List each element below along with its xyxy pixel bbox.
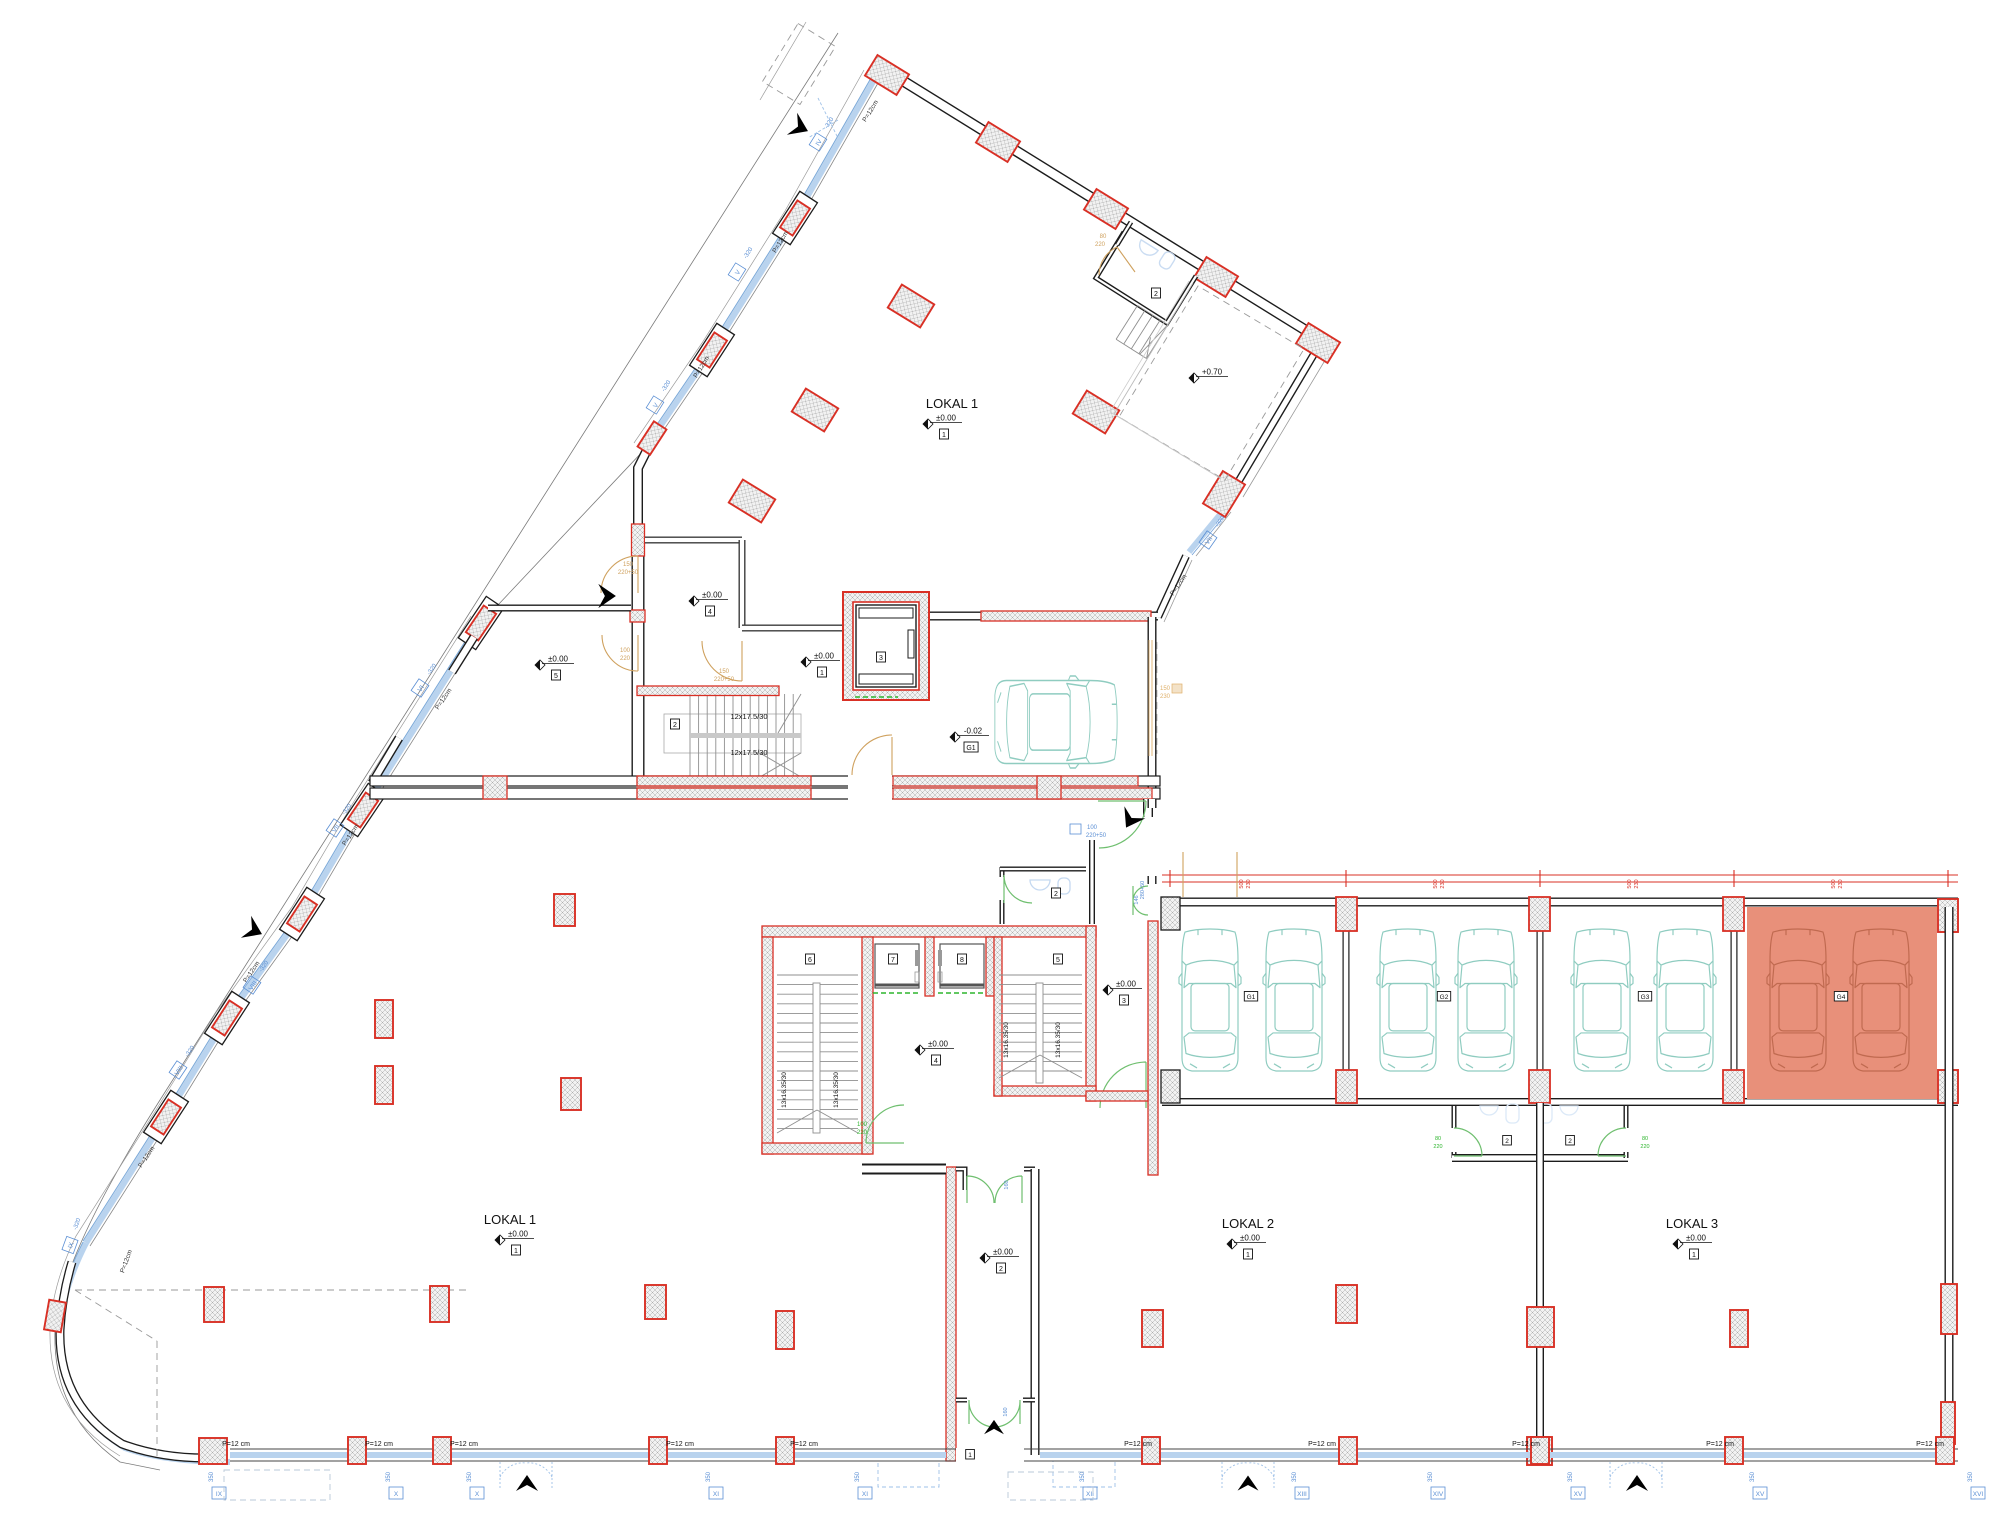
svg-text:13x16.35/30: 13x16.35/30 — [1055, 1022, 1062, 1058]
svg-text:P=12 cm: P=12 cm — [1916, 1441, 1944, 1448]
svg-text:150: 150 — [1160, 686, 1171, 692]
svg-text:LOKAL 2: LOKAL 2 — [1222, 1216, 1274, 1231]
svg-text:1: 1 — [968, 1452, 972, 1459]
svg-text:5: 5 — [1056, 957, 1060, 964]
svg-text:13x16.35/30: 13x16.35/30 — [833, 1072, 840, 1108]
svg-text:XI: XI — [862, 1491, 868, 1498]
svg-text:XI: XI — [713, 1491, 719, 1498]
svg-text:G3: G3 — [1641, 994, 1650, 1001]
svg-text:230: 230 — [1634, 879, 1640, 888]
svg-text:1: 1 — [1246, 1252, 1250, 1259]
svg-text:100: 100 — [620, 648, 631, 654]
svg-text:XV: XV — [1756, 1491, 1765, 1498]
svg-text:5: 5 — [554, 673, 558, 680]
svg-text:350: 350 — [855, 1471, 861, 1482]
svg-text:±0.00: ±0.00 — [702, 591, 723, 600]
svg-text:500: 500 — [1239, 879, 1245, 888]
svg-text:350: 350 — [1968, 1471, 1974, 1482]
svg-text:±0.00: ±0.00 — [814, 652, 835, 661]
svg-text:3: 3 — [879, 655, 883, 662]
svg-text:350: 350 — [1750, 1471, 1756, 1482]
svg-text:13x16.35/30: 13x16.35/30 — [1003, 1022, 1010, 1058]
svg-text:2: 2 — [1505, 1138, 1509, 1145]
svg-text:2: 2 — [673, 722, 677, 729]
svg-text:IX: IX — [216, 1491, 223, 1498]
svg-text:P=12 cm: P=12 cm — [222, 1441, 250, 1448]
svg-text:6: 6 — [808, 957, 812, 964]
svg-text:±0.00: ±0.00 — [936, 414, 957, 423]
svg-text:7: 7 — [891, 957, 895, 964]
svg-text:P=12 cm: P=12 cm — [1124, 1441, 1152, 1448]
svg-text:2: 2 — [1154, 291, 1158, 298]
svg-text:500: 500 — [1627, 879, 1633, 888]
svg-text:XIII: XIII — [1297, 1491, 1307, 1498]
svg-text:220: 220 — [620, 656, 631, 662]
svg-text:P=12 cm: P=12 cm — [1706, 1441, 1734, 1448]
svg-text:220+50: 220+50 — [714, 677, 735, 683]
svg-text:350: 350 — [706, 1471, 712, 1482]
svg-text:350: 350 — [1568, 1471, 1574, 1482]
svg-text:±0.00: ±0.00 — [508, 1230, 529, 1239]
svg-text:350: 350 — [209, 1471, 215, 1482]
svg-text:LOKAL 3: LOKAL 3 — [1666, 1216, 1718, 1231]
svg-text:12x17.5/30: 12x17.5/30 — [730, 748, 767, 757]
svg-text:XVI: XVI — [1973, 1491, 1984, 1498]
svg-text:13x16.35/30: 13x16.35/30 — [781, 1072, 788, 1108]
svg-text:1: 1 — [1692, 1252, 1696, 1259]
svg-text:G1: G1 — [966, 745, 975, 752]
svg-text:500: 500 — [1433, 879, 1439, 888]
svg-text:230: 230 — [1160, 694, 1171, 700]
svg-text:4: 4 — [934, 1058, 938, 1065]
svg-text:±0.00: ±0.00 — [548, 655, 569, 664]
svg-text:100: 100 — [1087, 825, 1098, 831]
svg-text:1: 1 — [820, 670, 824, 677]
svg-text:G2: G2 — [1440, 994, 1449, 1001]
svg-text:80: 80 — [1642, 1136, 1648, 1142]
svg-text:150: 150 — [719, 669, 730, 675]
svg-text:1: 1 — [942, 432, 946, 439]
svg-text:500: 500 — [1831, 879, 1837, 888]
svg-text:X: X — [394, 1491, 399, 1498]
svg-text:3: 3 — [1122, 998, 1126, 1005]
svg-text:P=12 cm: P=12 cm — [1512, 1441, 1540, 1448]
svg-text:±0.00: ±0.00 — [928, 1040, 949, 1049]
svg-text:±0.00: ±0.00 — [1116, 980, 1137, 989]
svg-text:350: 350 — [467, 1471, 473, 1482]
svg-text:220: 220 — [1095, 242, 1106, 248]
svg-text:220: 220 — [1433, 1144, 1442, 1150]
svg-text:80: 80 — [1100, 234, 1107, 240]
svg-text:2: 2 — [1054, 891, 1058, 898]
svg-text:350: 350 — [1292, 1471, 1298, 1482]
svg-text:X: X — [475, 1491, 480, 1498]
svg-text:220: 220 — [857, 1130, 868, 1136]
svg-text:1: 1 — [514, 1248, 518, 1255]
svg-text:-0.02: -0.02 — [964, 727, 983, 736]
svg-text:P=12 cm: P=12 cm — [666, 1441, 694, 1448]
svg-text:G1: G1 — [1247, 994, 1256, 1001]
svg-text:P=12 cm: P=12 cm — [790, 1441, 818, 1448]
svg-text:350: 350 — [1080, 1471, 1086, 1482]
svg-text:160: 160 — [1003, 1407, 1009, 1416]
svg-text:±0.00: ±0.00 — [1686, 1234, 1707, 1243]
svg-text:12x17.5/30: 12x17.5/30 — [730, 712, 767, 721]
svg-text:LOKAL 1: LOKAL 1 — [484, 1212, 536, 1227]
svg-text:8: 8 — [960, 957, 964, 964]
svg-text:2: 2 — [999, 1266, 1003, 1273]
svg-text:230: 230 — [1838, 879, 1844, 888]
svg-text:230: 230 — [1246, 879, 1252, 888]
svg-text:100: 100 — [857, 1122, 868, 1128]
svg-text:350: 350 — [1428, 1471, 1434, 1482]
svg-text:P=12 cm: P=12 cm — [450, 1441, 478, 1448]
svg-text:4: 4 — [708, 609, 712, 616]
svg-text:150: 150 — [623, 562, 634, 568]
svg-text:160: 160 — [1004, 1180, 1010, 1189]
svg-text:+0.70: +0.70 — [1202, 368, 1223, 377]
svg-text:G4: G4 — [1837, 994, 1846, 1001]
svg-text:280+50: 280+50 — [1140, 881, 1146, 900]
svg-text:LOKAL 1: LOKAL 1 — [926, 396, 978, 411]
svg-text:XIV: XIV — [1433, 1491, 1444, 1498]
svg-text:350: 350 — [386, 1471, 392, 1482]
svg-text:220+50: 220+50 — [1086, 833, 1107, 839]
svg-text:±0.00: ±0.00 — [1240, 1234, 1261, 1243]
svg-text:230: 230 — [1440, 879, 1446, 888]
svg-text:P=12 cm: P=12 cm — [365, 1441, 393, 1448]
svg-text:220+50: 220+50 — [618, 570, 639, 576]
svg-text:2: 2 — [1568, 1138, 1572, 1145]
svg-text:220: 220 — [1640, 1144, 1649, 1150]
svg-text:XV: XV — [1574, 1491, 1583, 1498]
svg-text:80: 80 — [1435, 1136, 1441, 1142]
svg-text:±0.00: ±0.00 — [993, 1248, 1014, 1257]
svg-text:P=12 cm: P=12 cm — [1308, 1441, 1336, 1448]
